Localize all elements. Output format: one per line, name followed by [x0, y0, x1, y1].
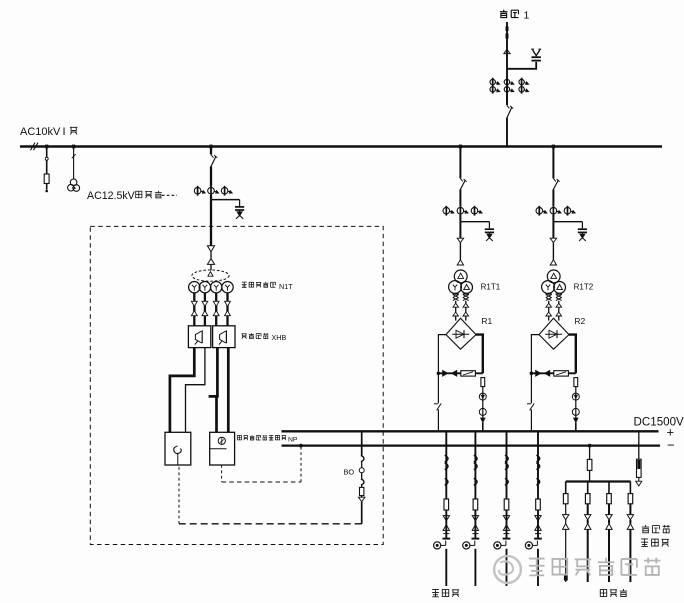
svg-text:NP: NP	[288, 437, 298, 444]
svg-text:R2: R2	[574, 316, 585, 326]
svg-text:AC12.5kV: AC12.5kV	[87, 190, 136, 202]
svg-text:DC1500V: DC1500V	[634, 416, 684, 429]
svg-text:R1T1: R1T1	[481, 283, 501, 292]
svg-text:1: 1	[524, 10, 530, 22]
svg-text:N1T: N1T	[279, 282, 293, 291]
svg-text:−: −	[667, 438, 675, 453]
svg-text:I: I	[63, 126, 66, 138]
svg-text:BO: BO	[344, 468, 355, 477]
svg-text:R1: R1	[481, 316, 492, 326]
svg-text:R1T2: R1T2	[574, 283, 594, 292]
svg-text:AC10kV: AC10kV	[20, 126, 61, 138]
svg-text:XHB: XHB	[272, 333, 287, 342]
